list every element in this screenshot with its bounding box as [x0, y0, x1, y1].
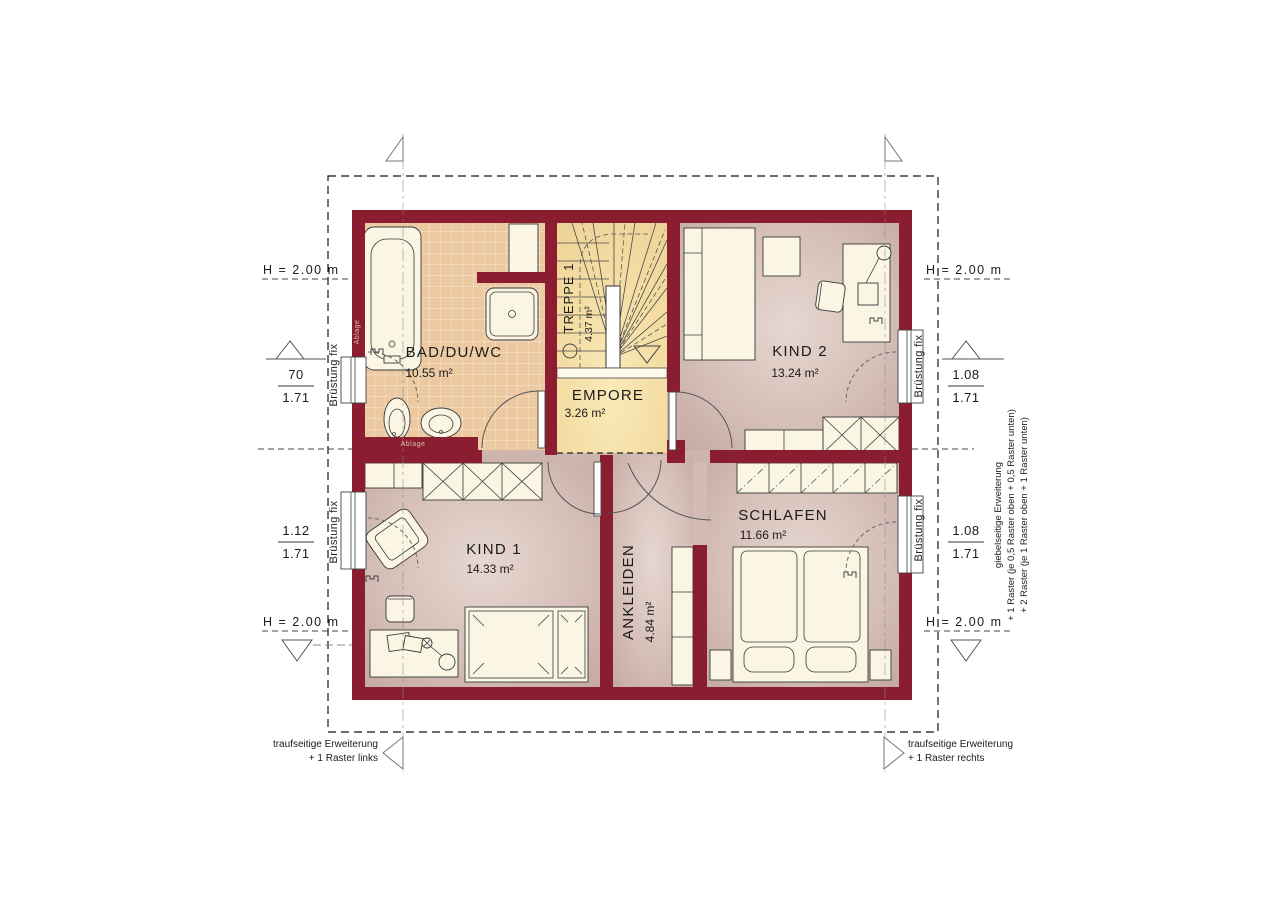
- flag-bottom-right: [884, 737, 904, 769]
- kind1-desk: [370, 630, 458, 677]
- room-area-treppe: 4.37 m²: [583, 306, 595, 342]
- wall-bottom: [352, 687, 912, 700]
- window-bath: [341, 357, 366, 403]
- ablage-label-left: Ablage: [354, 320, 361, 345]
- room-label-bad: BAD/DU/WC: [406, 344, 503, 361]
- height-label-bottom-right: H = 2.00 m: [926, 615, 1003, 629]
- gable-extension-line2: + 1 Raster (je 0,5 Raster oben + 0,5 Ras…: [1006, 409, 1017, 621]
- room-area-schlafen: 11.66 m²: [740, 528, 786, 542]
- ankleiden-shelf: [672, 547, 693, 685]
- flag-top-left: [386, 137, 403, 161]
- fraction-num: 1.08: [952, 523, 979, 538]
- room-label-kind1: KIND 1: [466, 541, 522, 558]
- room-label-treppe: TREPPE 1: [561, 263, 576, 334]
- fraction-den: 1.71: [282, 546, 309, 561]
- marker-right-bottom: 1.08 1.71: [948, 523, 984, 561]
- room-label-empore: EMPORE: [572, 387, 644, 404]
- schlafen-double-bed: [733, 547, 868, 682]
- room-area-kind2: 13.24 m²: [771, 366, 818, 380]
- gable-extension-line3: + 2 Raster (je 1 Raster oben + 1 Raster …: [1019, 417, 1030, 613]
- kind1-wardrobe: [423, 463, 542, 500]
- flag-bottom-left: [383, 737, 403, 769]
- traufseitig-left-line2: + 1 Raster links: [309, 753, 378, 764]
- stair-newel-wall: [606, 286, 620, 368]
- fraction-num: 1.08: [952, 367, 979, 382]
- wall-stair-kind2: [667, 223, 680, 392]
- wall-bath-stair: [545, 223, 557, 455]
- fraction-num: 1.12: [282, 523, 309, 538]
- triangle-down-left: [282, 640, 312, 661]
- wall-middle-left: [352, 450, 482, 463]
- bath-cabinet: [509, 224, 538, 278]
- room-label-schlafen: SCHLAFEN: [738, 507, 828, 524]
- gable-extension-line1: giebelseitige Erweiterung: [993, 462, 1004, 568]
- wall-ankleiden-right: [693, 545, 707, 700]
- kind1-chair: [386, 596, 414, 622]
- kind2-wardrobe: [823, 417, 899, 453]
- room-area-empore: 3.26 m²: [565, 406, 606, 420]
- kind2-bed: [684, 228, 755, 360]
- nightstand-left: [710, 650, 731, 680]
- room-label-ankleiden: ANKLEIDEN: [620, 544, 637, 640]
- wall-bath-stub: [477, 272, 545, 283]
- bruestung-right-top: Brüstung fix: [913, 334, 925, 397]
- sink: [421, 408, 461, 438]
- bruestung-left-top: Brüstung fix: [328, 343, 340, 406]
- kind2-chair: [815, 280, 846, 312]
- shower: [486, 288, 538, 340]
- traufseitig-right-line1: traufseitige Erweiterung: [908, 739, 1013, 750]
- window-kind1: [341, 492, 366, 569]
- room-area-ankleiden: 4.84 m²: [643, 602, 657, 643]
- stair-landing-edge: [557, 368, 667, 378]
- wall-top: [352, 210, 912, 223]
- room-area-kind1: 14.33 m²: [466, 562, 513, 576]
- ablage-label-bottom: Ablage: [401, 441, 426, 448]
- marker-right-top: 1.08 1.71: [942, 341, 1004, 405]
- flag-top-right: [885, 137, 902, 161]
- room-label-kind2: KIND 2: [772, 343, 828, 360]
- vestibule-floor: [693, 463, 707, 545]
- room-area-bad: 10.55 m²: [405, 366, 452, 380]
- fraction-den: 1.71: [952, 546, 979, 561]
- traufseitig-left-line1: traufseitige Erweiterung: [273, 739, 378, 750]
- fraction-den: 1.71: [952, 390, 979, 405]
- kind1-dresser: [365, 463, 422, 488]
- bruestung-right-bottom: Brüstung fix: [913, 498, 925, 561]
- nightstand-right: [870, 650, 891, 680]
- traufseitig-right-line2: + 1 Raster rechts: [908, 753, 984, 764]
- bruestung-left-bottom: Brüstung fix: [328, 500, 340, 563]
- fraction-den: 1.71: [282, 390, 309, 405]
- schlafen-wardrobe: [737, 463, 897, 493]
- floor-plan-canvas: 70 1.71 1.12 1.71 1.08 1.71 1.08 1.71 H …: [0, 0, 1280, 906]
- fraction-num: 70: [288, 367, 303, 382]
- kind2-desk: [843, 244, 891, 342]
- marker-left-bottom: 1.12 1.71: [278, 523, 314, 561]
- height-label-top-left: H = 2.00 m: [263, 263, 340, 277]
- height-label-top-right: H = 2.00 m: [926, 263, 1003, 277]
- wall-ankleiden-left: [600, 455, 613, 700]
- height-label-bottom-left: H = 2.00 m: [263, 615, 340, 629]
- kind1-bed: [465, 607, 588, 682]
- kind2-table: [763, 237, 800, 276]
- marker-left-top: 70 1.71: [266, 341, 326, 405]
- kind2-dresser: [745, 430, 823, 453]
- wall-middle-right: [710, 450, 912, 463]
- triangle-down-right: [951, 640, 981, 661]
- toilet: [384, 398, 410, 440]
